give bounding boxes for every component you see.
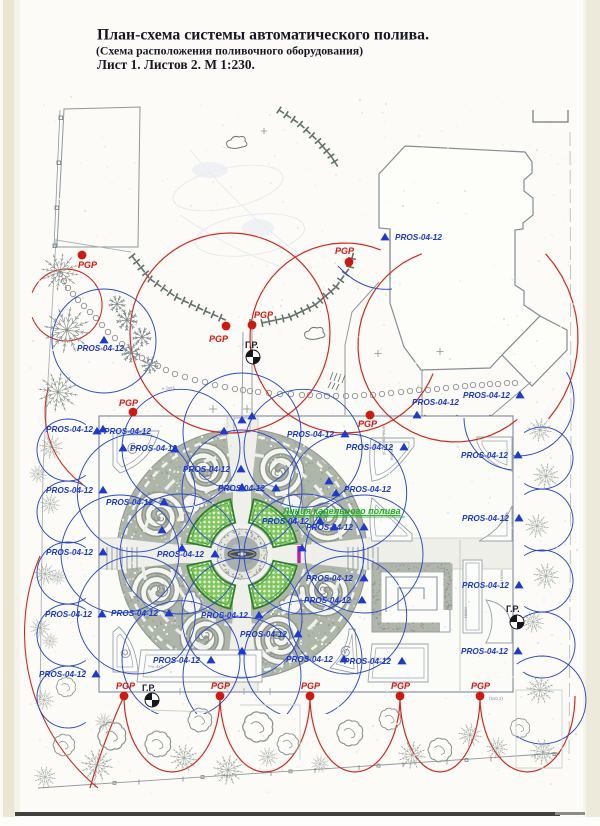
- svg-text:(5х0,2): (5х0,2): [489, 696, 504, 701]
- svg-text:PROS-04-12: PROS-04-12: [183, 465, 230, 474]
- svg-text:PGP: PGP: [254, 310, 274, 320]
- svg-text:PGP: PGP: [335, 246, 355, 256]
- svg-text:PROS-04-12: PROS-04-12: [153, 656, 200, 665]
- svg-text:газон: газон: [463, 606, 468, 618]
- svg-text:PROS-04-12: PROS-04-12: [111, 609, 158, 618]
- svg-text:PROS-04-12: PROS-04-12: [306, 574, 353, 583]
- svg-text:(Схема расположения поливочног: (Схема расположения поливочного оборудов…: [96, 44, 363, 58]
- svg-text:PGP: PGP: [78, 260, 98, 270]
- svg-text:PGP: PGP: [211, 681, 231, 691]
- svg-text:PGP: PGP: [119, 398, 139, 408]
- svg-text:PROS-04-12: PROS-04-12: [106, 498, 153, 507]
- svg-text:PROS-04-12: PROS-04-12: [462, 514, 509, 523]
- svg-text:PROS-04-12: PROS-04-12: [346, 443, 393, 452]
- svg-text:PROS-04-12: PROS-04-12: [46, 486, 93, 495]
- svg-text:Лист 1. Листов 2. М 1:230.: Лист 1. Листов 2. М 1:230.: [97, 57, 255, 72]
- svg-text:PGP: PGP: [358, 419, 378, 429]
- svg-text:PROS-04-12: PROS-04-12: [306, 523, 353, 532]
- svg-text:PROS-04-12: PROS-04-12: [395, 233, 442, 242]
- svg-text:Г.Р.: Г.Р.: [245, 340, 259, 350]
- svg-text:газон: газон: [499, 569, 504, 581]
- svg-text:PROS-04-12: PROS-04-12: [412, 398, 459, 407]
- svg-text:PROS-04-12: PROS-04-12: [344, 657, 391, 666]
- svg-text:PROS-04-12: PROS-04-12: [463, 391, 510, 400]
- svg-text:Г.Р.: Г.Р.: [142, 683, 156, 693]
- svg-text:PGP: PGP: [116, 681, 136, 691]
- svg-text:PROS-04-12: PROS-04-12: [46, 425, 93, 434]
- svg-text:PROS-04-12: PROS-04-12: [304, 596, 351, 605]
- svg-text:PROS-04-12: PROS-04-12: [344, 485, 391, 494]
- svg-text:PROS-04-12: PROS-04-12: [462, 581, 509, 590]
- svg-text:PGP: PGP: [301, 681, 321, 691]
- svg-text:PROS-04-12: PROS-04-12: [262, 517, 309, 526]
- svg-text:PROS-04-12: PROS-04-12: [130, 444, 177, 453]
- svg-text:План-схема системы автоматичес: План-схема системы автоматического полив…: [97, 27, 429, 44]
- svg-text:PROS-04-12: PROS-04-12: [461, 647, 508, 656]
- svg-text:PROS-04-12: PROS-04-12: [45, 610, 92, 619]
- svg-text:PROS-04-12: PROS-04-12: [46, 548, 93, 557]
- svg-text:PGP: PGP: [209, 334, 229, 344]
- svg-text:Г.Р.: Г.Р.: [506, 604, 520, 614]
- svg-text:PROS-04-12: PROS-04-12: [286, 655, 333, 664]
- svg-text:PROS-04-12: PROS-04-12: [240, 630, 287, 639]
- svg-text:PROS-04-12: PROS-04-12: [77, 344, 124, 353]
- svg-text:PROS-04-12: PROS-04-12: [201, 611, 248, 620]
- svg-text:Линия капельного полива: Линия капельного полива: [282, 506, 401, 516]
- svg-text:PROS-04-12: PROS-04-12: [461, 451, 508, 460]
- svg-text:PROS-04-12: PROS-04-12: [287, 430, 334, 439]
- svg-text:PGP: PGP: [471, 681, 491, 691]
- svg-text:PGP: PGP: [391, 681, 411, 691]
- svg-text:PROS-04-12: PROS-04-12: [39, 670, 86, 679]
- svg-text:PROS-04-12: PROS-04-12: [104, 427, 151, 436]
